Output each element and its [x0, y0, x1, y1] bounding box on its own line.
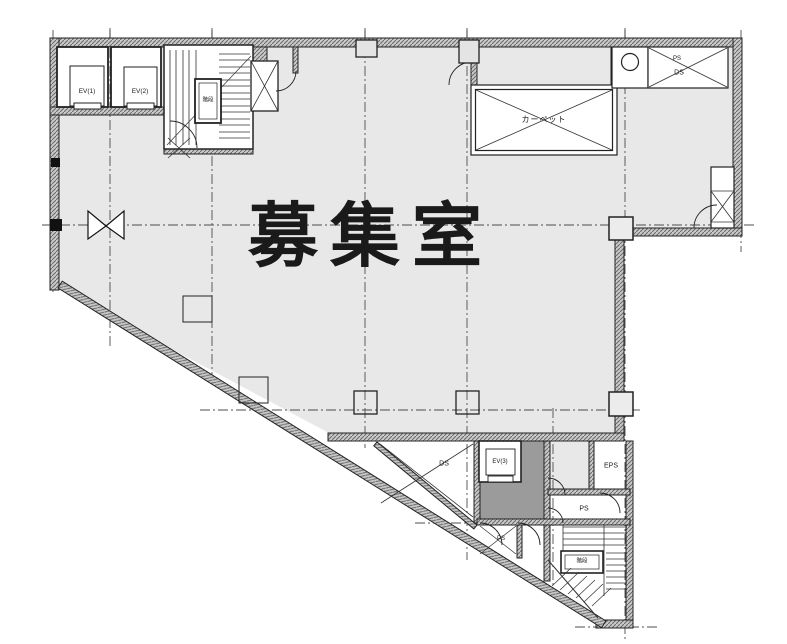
- small-room-floor: [548, 441, 592, 490]
- stairs-top-label: 階段: [202, 98, 213, 104]
- ev3-label: EV(3): [492, 459, 507, 465]
- ds-bottom-label: DS: [439, 461, 449, 468]
- ds-triangle-bottom: [380, 444, 473, 517]
- ds-top-label: DS: [674, 70, 684, 77]
- ev1-label: EV(1): [79, 89, 96, 96]
- ds-shaft-top: [612, 47, 728, 88]
- dimension-ticks: [110, 28, 625, 38]
- stairs-bottom-label: 階段: [576, 559, 587, 565]
- stairs-bottom: [548, 525, 627, 618]
- ps-top-label: PS: [673, 56, 681, 62]
- ps-small-label: PS: [497, 536, 505, 542]
- ev2-label: EV(2): [132, 89, 149, 96]
- floor-plan-canvas: 募集室 EV(1) EV(2) 階段 PS DS カーペット DS EV(3) …: [0, 0, 787, 644]
- main-room-label: 募集室: [236, 201, 494, 271]
- ps-mid-label: PS: [579, 506, 588, 513]
- eps-label: EPS: [604, 463, 618, 470]
- carpet-shaft-label: カーペット: [522, 116, 567, 124]
- floor-plan-drawing: [0, 0, 787, 644]
